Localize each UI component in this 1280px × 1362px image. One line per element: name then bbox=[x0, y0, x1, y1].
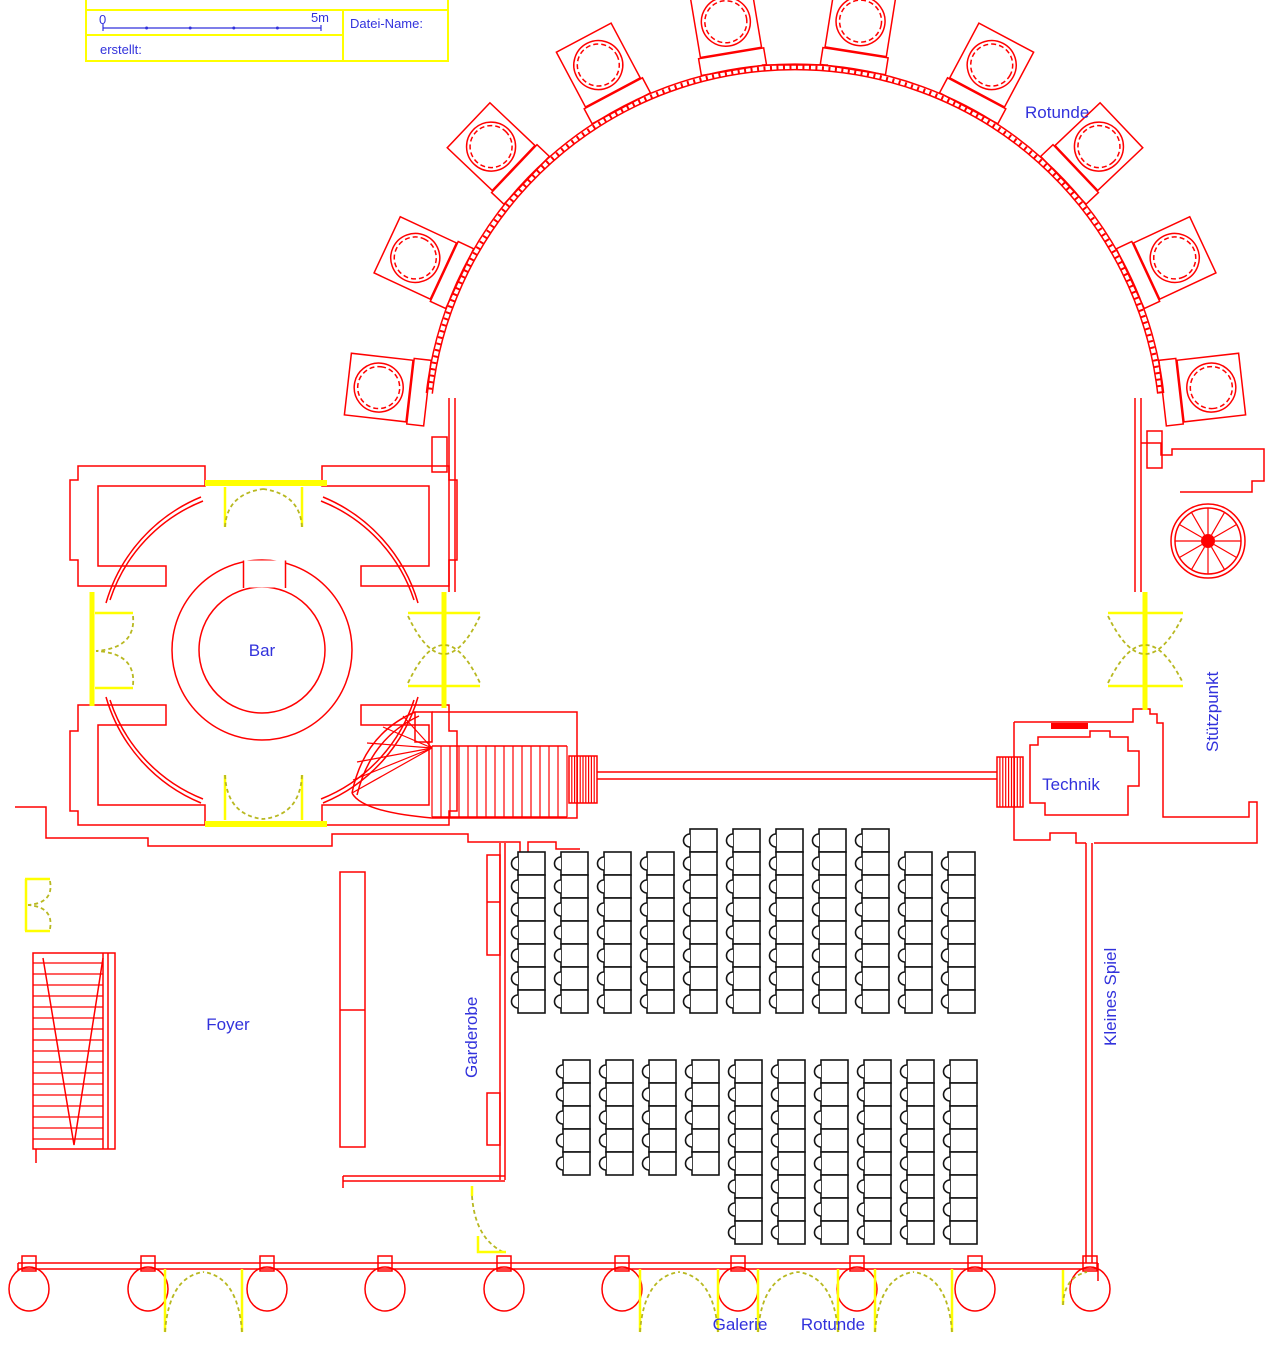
seat bbox=[856, 990, 890, 1013]
seat bbox=[684, 921, 718, 944]
seat bbox=[901, 1152, 934, 1175]
seat bbox=[729, 1175, 763, 1198]
seat bbox=[856, 967, 890, 990]
scale-box bbox=[86, 10, 343, 35]
seat bbox=[772, 1221, 805, 1244]
seat bbox=[901, 1221, 934, 1244]
seat bbox=[770, 921, 803, 944]
seat bbox=[944, 1083, 977, 1106]
seat bbox=[729, 1060, 763, 1083]
seat bbox=[643, 1152, 676, 1175]
title-block: 0 5m erstellt: Datei-Name: bbox=[86, 0, 448, 61]
bar-door-north bbox=[205, 480, 327, 527]
seat bbox=[600, 1060, 634, 1083]
seat bbox=[598, 921, 632, 944]
seat bbox=[901, 1175, 934, 1198]
seat bbox=[856, 875, 890, 898]
seat bbox=[600, 1083, 634, 1106]
seat bbox=[856, 852, 890, 875]
datei-name-label: Datei-Name: bbox=[350, 16, 423, 31]
seat bbox=[598, 852, 632, 875]
seat bbox=[858, 1060, 892, 1083]
seat bbox=[899, 898, 933, 921]
seat bbox=[557, 1129, 591, 1152]
stuetzpunkt-label: Stützpunkt bbox=[1203, 671, 1222, 752]
scale-bar-icon bbox=[103, 24, 321, 31]
seat bbox=[641, 875, 674, 898]
galerie-column-icon bbox=[365, 1256, 405, 1311]
floor-plan-page: 0 5m erstellt: Datei-Name: bbox=[0, 0, 1280, 1362]
seat bbox=[643, 1060, 676, 1083]
seat bbox=[727, 990, 761, 1013]
galerie-column-icon bbox=[484, 1256, 524, 1311]
seat bbox=[512, 852, 545, 875]
seat bbox=[727, 944, 761, 967]
seat bbox=[815, 1060, 849, 1083]
column-icon bbox=[1159, 351, 1246, 426]
foyer: Foyer bbox=[25, 879, 250, 1163]
spiral-staircase-icon bbox=[1171, 504, 1245, 578]
seat bbox=[555, 852, 589, 875]
kleines-spiel-label: Kleines Spiel bbox=[1101, 948, 1120, 1046]
seat bbox=[643, 1106, 676, 1129]
seat bbox=[512, 898, 545, 921]
seat bbox=[813, 990, 846, 1013]
seat bbox=[727, 898, 761, 921]
seat bbox=[858, 1083, 892, 1106]
seat bbox=[813, 944, 846, 967]
seat bbox=[600, 1129, 634, 1152]
seat bbox=[856, 921, 890, 944]
column-icon bbox=[820, 0, 898, 75]
erstellt-label: erstellt: bbox=[100, 42, 142, 57]
door-swing-icon bbox=[640, 1269, 718, 1332]
kleines-spiel-wall bbox=[1086, 843, 1092, 1263]
bar-pier-ne bbox=[322, 466, 457, 586]
bar-door-east bbox=[408, 592, 480, 708]
seat bbox=[813, 852, 846, 875]
galerie-column-icon bbox=[718, 1256, 758, 1311]
rotunde-top-label: Rotunde bbox=[1025, 103, 1089, 122]
seat bbox=[899, 852, 933, 875]
garderobe: Garderobe bbox=[340, 843, 506, 1252]
scale-end-label: 5m bbox=[311, 10, 329, 25]
seat bbox=[727, 829, 761, 852]
seat bbox=[641, 990, 674, 1013]
seat bbox=[944, 1106, 977, 1129]
seat bbox=[899, 921, 933, 944]
seat bbox=[942, 875, 975, 898]
seat bbox=[641, 852, 674, 875]
seat bbox=[557, 1060, 591, 1083]
stuetzpunkt-door bbox=[1108, 592, 1183, 710]
seat bbox=[813, 829, 846, 852]
seat bbox=[856, 944, 890, 967]
seat bbox=[770, 944, 803, 967]
seat bbox=[813, 898, 846, 921]
seat bbox=[684, 898, 718, 921]
seat bbox=[858, 1129, 892, 1152]
seat bbox=[512, 944, 545, 967]
galerie-column-icon bbox=[1070, 1256, 1110, 1311]
seat bbox=[858, 1106, 892, 1129]
door-swing-icon bbox=[165, 1269, 242, 1332]
seat bbox=[944, 1060, 977, 1083]
seat bbox=[942, 921, 975, 944]
staircase-icon-main bbox=[352, 712, 577, 818]
floor-plan-drawing: 0 5m erstellt: Datei-Name: bbox=[0, 0, 1280, 1362]
seat bbox=[598, 944, 632, 967]
seat bbox=[684, 990, 718, 1013]
seat bbox=[772, 1152, 805, 1175]
bridge-corridor bbox=[569, 756, 1023, 807]
seat bbox=[557, 1152, 591, 1175]
seat bbox=[512, 990, 545, 1013]
seat bbox=[815, 1106, 849, 1129]
galerie-colonnade bbox=[9, 1256, 1110, 1332]
seat bbox=[641, 944, 674, 967]
seat bbox=[944, 1152, 977, 1175]
galerie-column-icon bbox=[9, 1256, 49, 1311]
seat bbox=[856, 898, 890, 921]
seat bbox=[686, 1152, 720, 1175]
seat bbox=[901, 1083, 934, 1106]
seat bbox=[555, 875, 589, 898]
seat bbox=[686, 1129, 720, 1152]
seat bbox=[686, 1060, 720, 1083]
seat bbox=[772, 1175, 805, 1198]
seat bbox=[770, 967, 803, 990]
door-swing-icon bbox=[875, 1269, 952, 1332]
seat bbox=[598, 875, 632, 898]
seat bbox=[727, 875, 761, 898]
seat bbox=[772, 1083, 805, 1106]
seat bbox=[770, 829, 803, 852]
seat bbox=[684, 852, 718, 875]
galerie-label: Galerie bbox=[713, 1315, 768, 1334]
seat bbox=[899, 944, 933, 967]
seat bbox=[901, 1198, 934, 1221]
bar-door-south bbox=[205, 775, 327, 827]
seat bbox=[944, 1198, 977, 1221]
seat bbox=[641, 921, 674, 944]
rotunde-bottom-label: Rotunde bbox=[801, 1315, 865, 1334]
seat bbox=[729, 1083, 763, 1106]
seat bbox=[899, 990, 933, 1013]
column-icon bbox=[940, 22, 1036, 124]
seat bbox=[770, 875, 803, 898]
seat bbox=[729, 1152, 763, 1175]
seat bbox=[772, 1106, 805, 1129]
galerie-column-icon bbox=[837, 1256, 877, 1311]
seat bbox=[729, 1106, 763, 1129]
seat bbox=[899, 875, 933, 898]
seat bbox=[944, 1221, 977, 1244]
seat bbox=[686, 1083, 720, 1106]
seat bbox=[600, 1152, 634, 1175]
seat bbox=[944, 1175, 977, 1198]
bar-pier-sw bbox=[70, 705, 205, 825]
seat bbox=[815, 1175, 849, 1198]
seat bbox=[729, 1221, 763, 1244]
seat bbox=[901, 1106, 934, 1129]
seat bbox=[942, 944, 975, 967]
seat bbox=[856, 829, 890, 852]
bar-label: Bar bbox=[249, 641, 276, 660]
galerie-column-icon bbox=[602, 1256, 642, 1311]
seat bbox=[598, 898, 632, 921]
seat bbox=[815, 1129, 849, 1152]
seat bbox=[686, 1106, 720, 1129]
galerie-column-icon bbox=[955, 1256, 995, 1311]
seat bbox=[772, 1129, 805, 1152]
column-icon bbox=[344, 351, 431, 426]
staircase-icon-foyer bbox=[33, 953, 115, 1163]
seat bbox=[512, 921, 545, 944]
seat bbox=[512, 875, 545, 898]
seat bbox=[598, 967, 632, 990]
seat bbox=[772, 1198, 805, 1221]
galerie-column-icon bbox=[247, 1256, 287, 1311]
seat bbox=[729, 1129, 763, 1152]
seat bbox=[770, 898, 803, 921]
seat bbox=[643, 1083, 676, 1106]
seat bbox=[858, 1152, 892, 1175]
seat bbox=[641, 898, 674, 921]
column-icon bbox=[555, 22, 651, 124]
title-block-top-box bbox=[86, 0, 448, 10]
seat bbox=[555, 967, 589, 990]
seat bbox=[815, 1083, 849, 1106]
seat bbox=[770, 852, 803, 875]
seat bbox=[555, 898, 589, 921]
seat bbox=[944, 1129, 977, 1152]
bar-door-west bbox=[92, 592, 133, 706]
seat bbox=[684, 944, 718, 967]
seat bbox=[684, 875, 718, 898]
rotunda-right-wall bbox=[1135, 398, 1162, 592]
seat bbox=[727, 852, 761, 875]
seat bbox=[942, 967, 975, 990]
seat bbox=[555, 921, 589, 944]
seat bbox=[858, 1198, 892, 1221]
column-icon bbox=[688, 0, 766, 76]
seat bbox=[512, 967, 545, 990]
seat bbox=[729, 1198, 763, 1221]
rotunda-left-wall bbox=[432, 398, 455, 592]
foyer-door-icon bbox=[25, 879, 51, 931]
seat bbox=[684, 829, 718, 852]
seat bbox=[600, 1106, 634, 1129]
seat bbox=[942, 990, 975, 1013]
seat bbox=[813, 875, 846, 898]
garderobe-door-icon bbox=[472, 1186, 506, 1252]
galerie-column-icon bbox=[128, 1256, 168, 1311]
seat bbox=[641, 967, 674, 990]
seat bbox=[858, 1175, 892, 1198]
seat bbox=[942, 898, 975, 921]
foyer-label: Foyer bbox=[206, 1015, 250, 1034]
bar-room: Bar bbox=[70, 466, 457, 825]
scale-start-label: 0 bbox=[99, 12, 106, 27]
seat bbox=[813, 967, 846, 990]
seat bbox=[858, 1221, 892, 1244]
seat bbox=[727, 921, 761, 944]
seat bbox=[772, 1060, 805, 1083]
technik-label: Technik bbox=[1042, 775, 1100, 794]
seat bbox=[899, 967, 933, 990]
seat bbox=[727, 967, 761, 990]
seat bbox=[555, 944, 589, 967]
seat bbox=[684, 967, 718, 990]
seat bbox=[770, 990, 803, 1013]
seat bbox=[555, 990, 589, 1013]
seat bbox=[557, 1083, 591, 1106]
seat bbox=[901, 1060, 934, 1083]
seat bbox=[557, 1106, 591, 1129]
seat bbox=[813, 921, 846, 944]
seating-area bbox=[512, 829, 977, 1244]
bar-pier-nw bbox=[70, 466, 205, 586]
column-icon bbox=[446, 101, 549, 204]
seat bbox=[598, 990, 632, 1013]
seat bbox=[643, 1129, 676, 1152]
seat bbox=[815, 1221, 849, 1244]
seat bbox=[901, 1129, 934, 1152]
seat bbox=[942, 852, 975, 875]
garderobe-label: Garderobe bbox=[462, 997, 481, 1078]
seat bbox=[815, 1198, 849, 1221]
seat bbox=[815, 1152, 849, 1175]
